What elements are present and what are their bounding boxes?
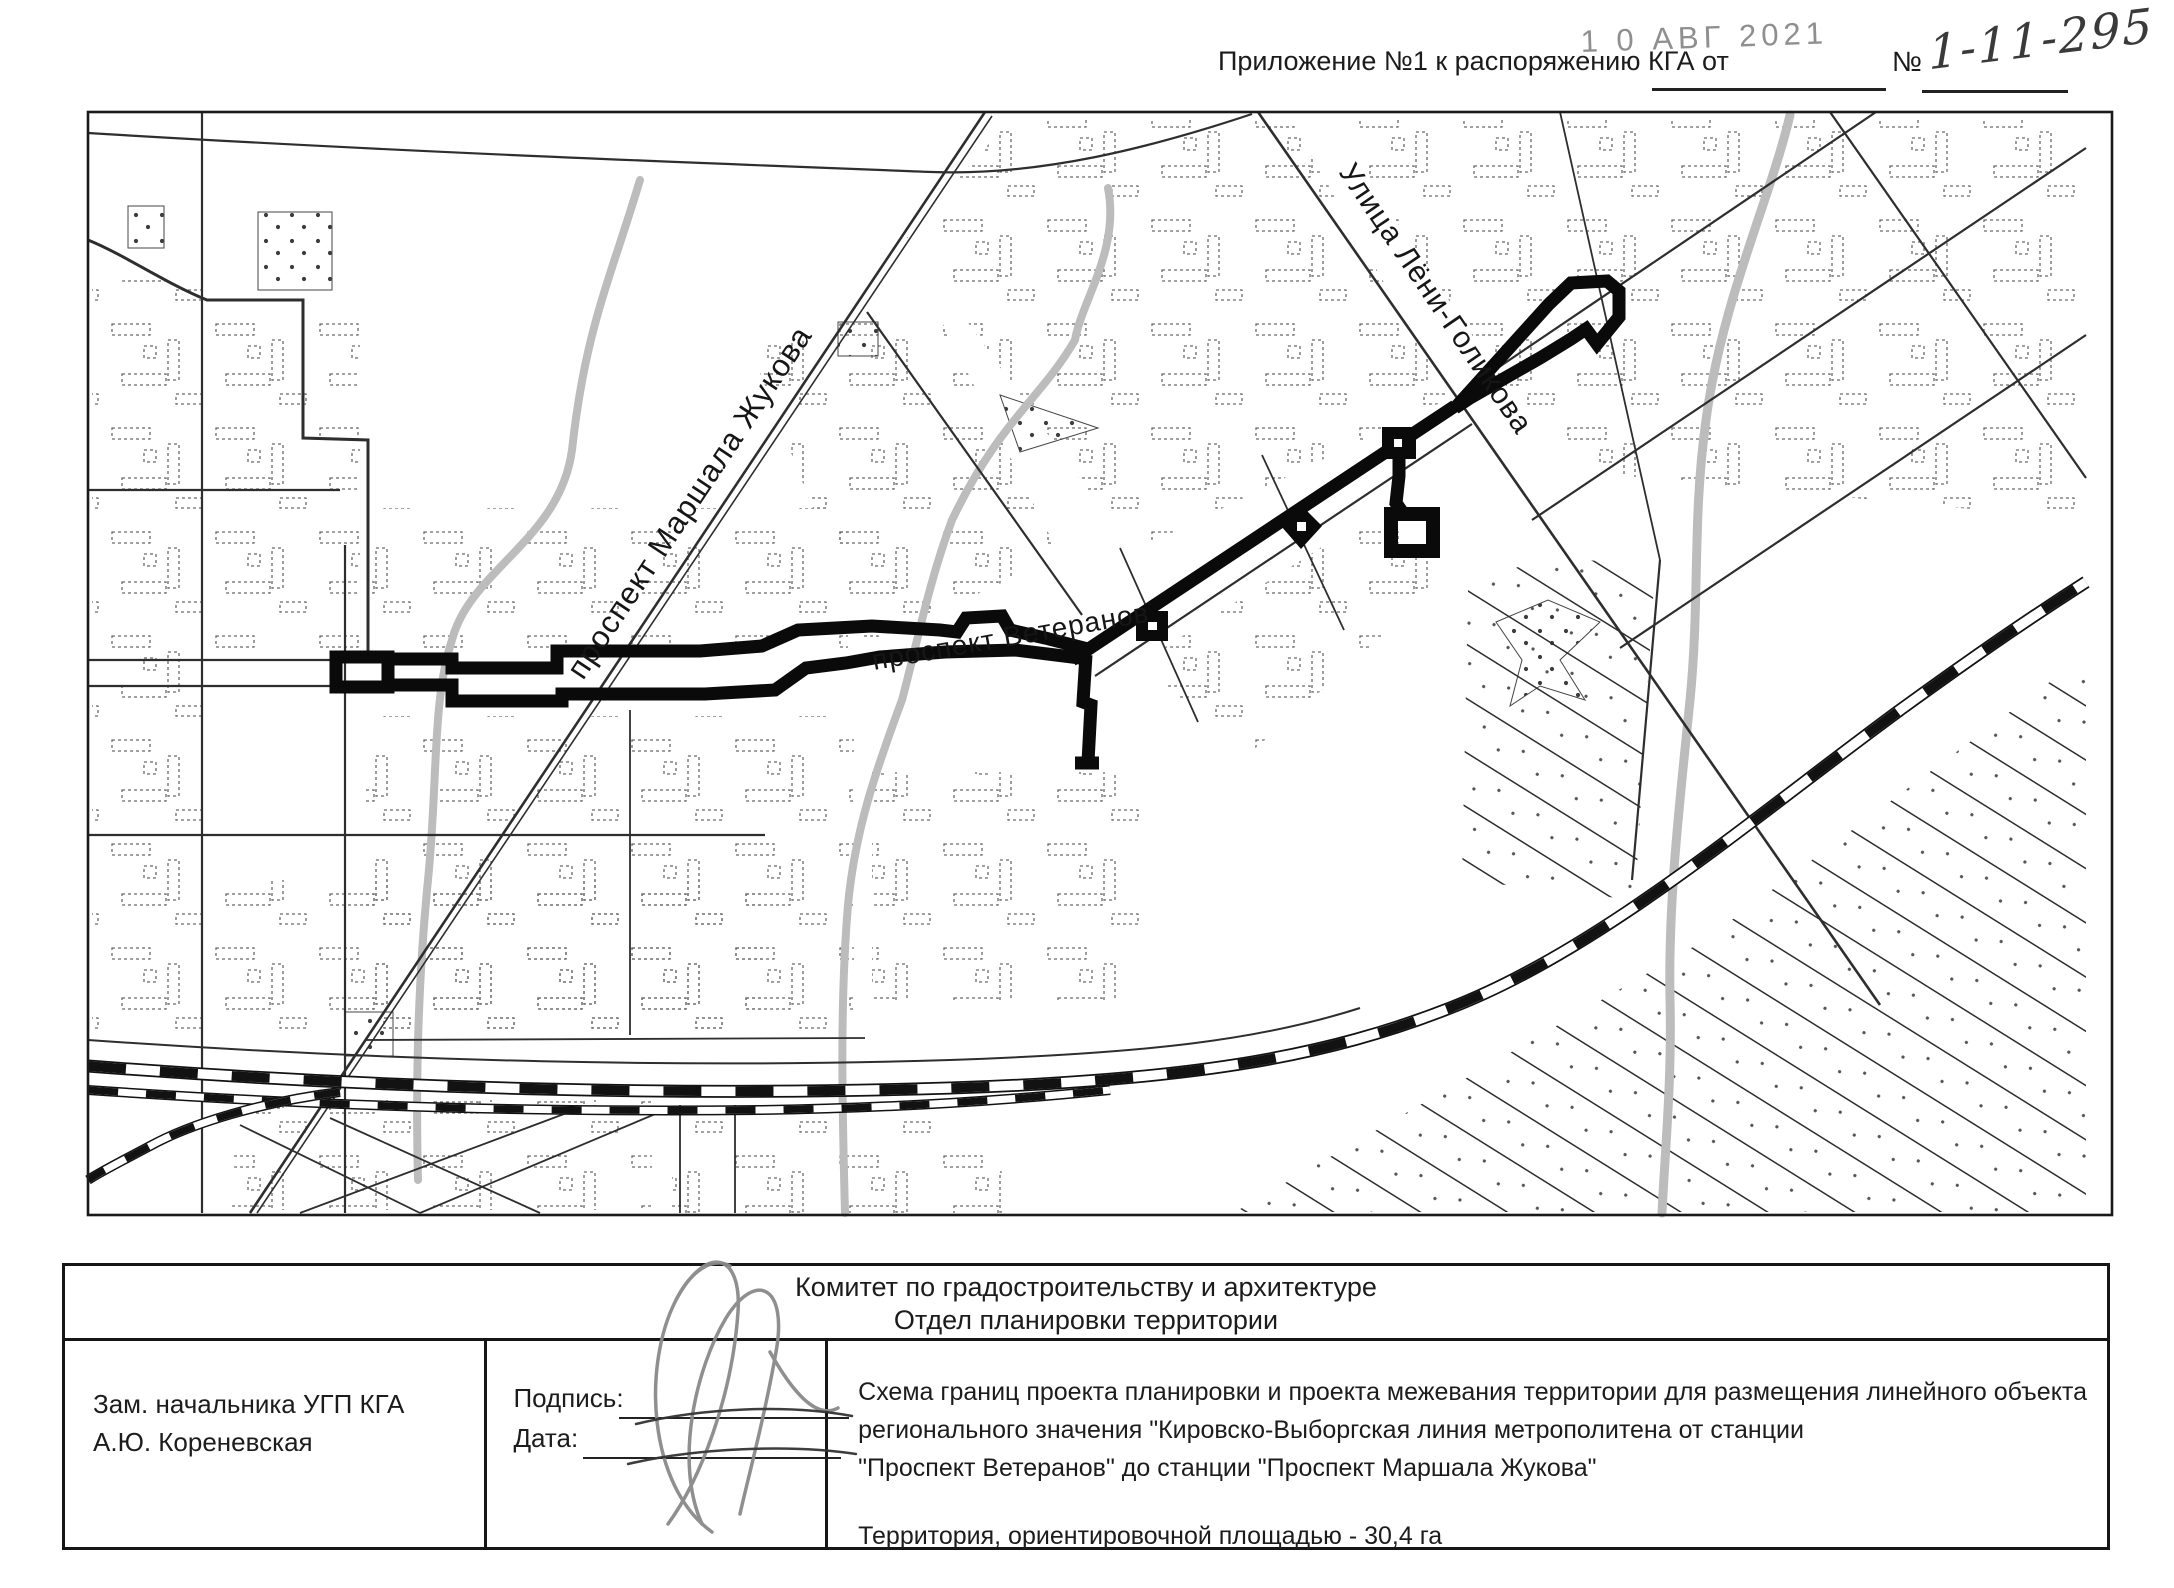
blocks-texture — [212, 305, 360, 650]
boundary-end-loop — [1455, 281, 1619, 408]
street-veteranov-ne — [1095, 424, 1472, 676]
title-block-org-row: Комитет по градостроительству и архитект… — [65, 1266, 2107, 1341]
blocks-texture — [232, 1100, 652, 1210]
hatched-area — [1235, 655, 2086, 1212]
boundary-west-loop — [336, 657, 388, 687]
park-area — [1000, 395, 1098, 452]
blocks-texture — [202, 880, 762, 1030]
railway-branch — [88, 1092, 340, 1180]
railway — [88, 582, 2086, 1180]
official-name: А.Ю. Кореневская — [93, 1423, 484, 1461]
boundary-stub — [1396, 446, 1403, 513]
boundary-nodes — [1136, 427, 1416, 641]
boundary-node — [1382, 427, 1416, 459]
railway-second-track — [88, 1090, 1110, 1110]
date-rule — [583, 1425, 841, 1459]
official-cell: Зам. начальника УГП КГА А.Ю. Кореневская — [65, 1341, 487, 1550]
street-cross — [1262, 455, 1344, 630]
org-department: Отдел планировки территории — [65, 1305, 2107, 1336]
street-minor — [1632, 560, 1660, 880]
org-name: Комитет по градостроительству и архитект… — [65, 1272, 2107, 1303]
park-area — [258, 212, 332, 290]
official-position: Зам. начальника УГП КГА — [93, 1385, 484, 1423]
railway-main — [88, 582, 2086, 1091]
street-zhukova — [257, 116, 992, 1213]
description-line: "Проспект Ветеранов" до станции "Проспек… — [858, 1449, 2087, 1487]
signature-rule — [619, 1385, 849, 1419]
river — [417, 180, 640, 1180]
river — [842, 188, 1110, 1213]
street-cross — [1120, 548, 1198, 722]
street-diagonal — [867, 312, 1082, 615]
street-golikova — [1258, 112, 1880, 1005]
boundary-south-edge — [388, 650, 1080, 701]
street-parallel-golikova — [1830, 112, 2086, 478]
signature-cell: Подпись: Дата: — [487, 1341, 828, 1550]
boundary-ne-line — [1072, 406, 1455, 660]
street-label-veteranov: проспект Ветеранов — [870, 597, 1152, 676]
street-slanted — [420, 1112, 660, 1213]
number-sign: № — [1892, 46, 1922, 78]
description-line: Схема границ проекта планировки и проект… — [858, 1373, 2087, 1411]
boundary-spur — [1083, 655, 1091, 762]
street-label-zhukova: проспект Маршала Жукова — [560, 319, 819, 684]
blocks-texture — [370, 508, 848, 648]
district-boundary-step — [88, 240, 368, 658]
signature-label: Подпись: — [513, 1383, 623, 1414]
description-line: регионального значения "Кировско-Выборгс… — [858, 1411, 2087, 1449]
boundary-node — [1281, 505, 1322, 549]
street-minor — [1560, 112, 1660, 560]
date-label: Дата: — [513, 1423, 578, 1454]
boundary-node — [1136, 611, 1168, 641]
map-base — [88, 112, 2086, 1213]
hatched-area — [1462, 556, 1655, 900]
blocks-texture — [1322, 118, 2086, 520]
park-area — [1496, 600, 1600, 706]
street-labels: проспект Маршала Жукова проспект Ветеран… — [560, 157, 1539, 684]
description-cell: Схема границ проекта планировки и проект… — [828, 1341, 2107, 1550]
boundary-square-loop — [1391, 514, 1433, 551]
street-slanted — [300, 1108, 580, 1213]
street-top-road — [88, 114, 1252, 172]
blocks-texture — [748, 302, 1060, 645]
project-boundary — [336, 281, 1619, 763]
boundary-node-dot — [1394, 439, 1402, 447]
street-zhukova — [250, 112, 985, 1213]
river — [1662, 115, 1790, 1213]
blocks-texture — [92, 280, 202, 1038]
boundary-node-dot — [1148, 622, 1157, 630]
boundary-north-edge — [388, 616, 1092, 668]
blocks-texture — [672, 1115, 1002, 1213]
document-page: Приложение №1 к распоряжению КГА от № 1 … — [0, 0, 2174, 1588]
street-north-of-railway — [88, 1008, 1360, 1063]
blocks-texture — [906, 118, 1450, 552]
street-label-golikova: Улица Лёни-Голикова — [1332, 157, 1539, 440]
park-area — [838, 322, 878, 356]
street-cross — [1620, 335, 2086, 648]
street-cross — [1532, 148, 2086, 520]
street-cross — [1465, 112, 1876, 390]
street-horizontal — [365, 1038, 865, 1040]
blocks-texture — [366, 716, 854, 1034]
park-area — [128, 206, 164, 248]
blocks-texture — [1142, 502, 1470, 760]
blocks-texture — [872, 772, 1150, 1000]
boundary-node-dot — [1297, 522, 1306, 531]
area-value: Территория, ориентировочной площадью - 3… — [858, 1517, 2087, 1555]
park-area — [345, 1012, 393, 1056]
title-block: Комитет по градостроительству и архитект… — [62, 1263, 2110, 1550]
map-frame — [88, 112, 2112, 1215]
street-slanted — [330, 1118, 540, 1213]
street-slanted — [240, 1125, 420, 1213]
